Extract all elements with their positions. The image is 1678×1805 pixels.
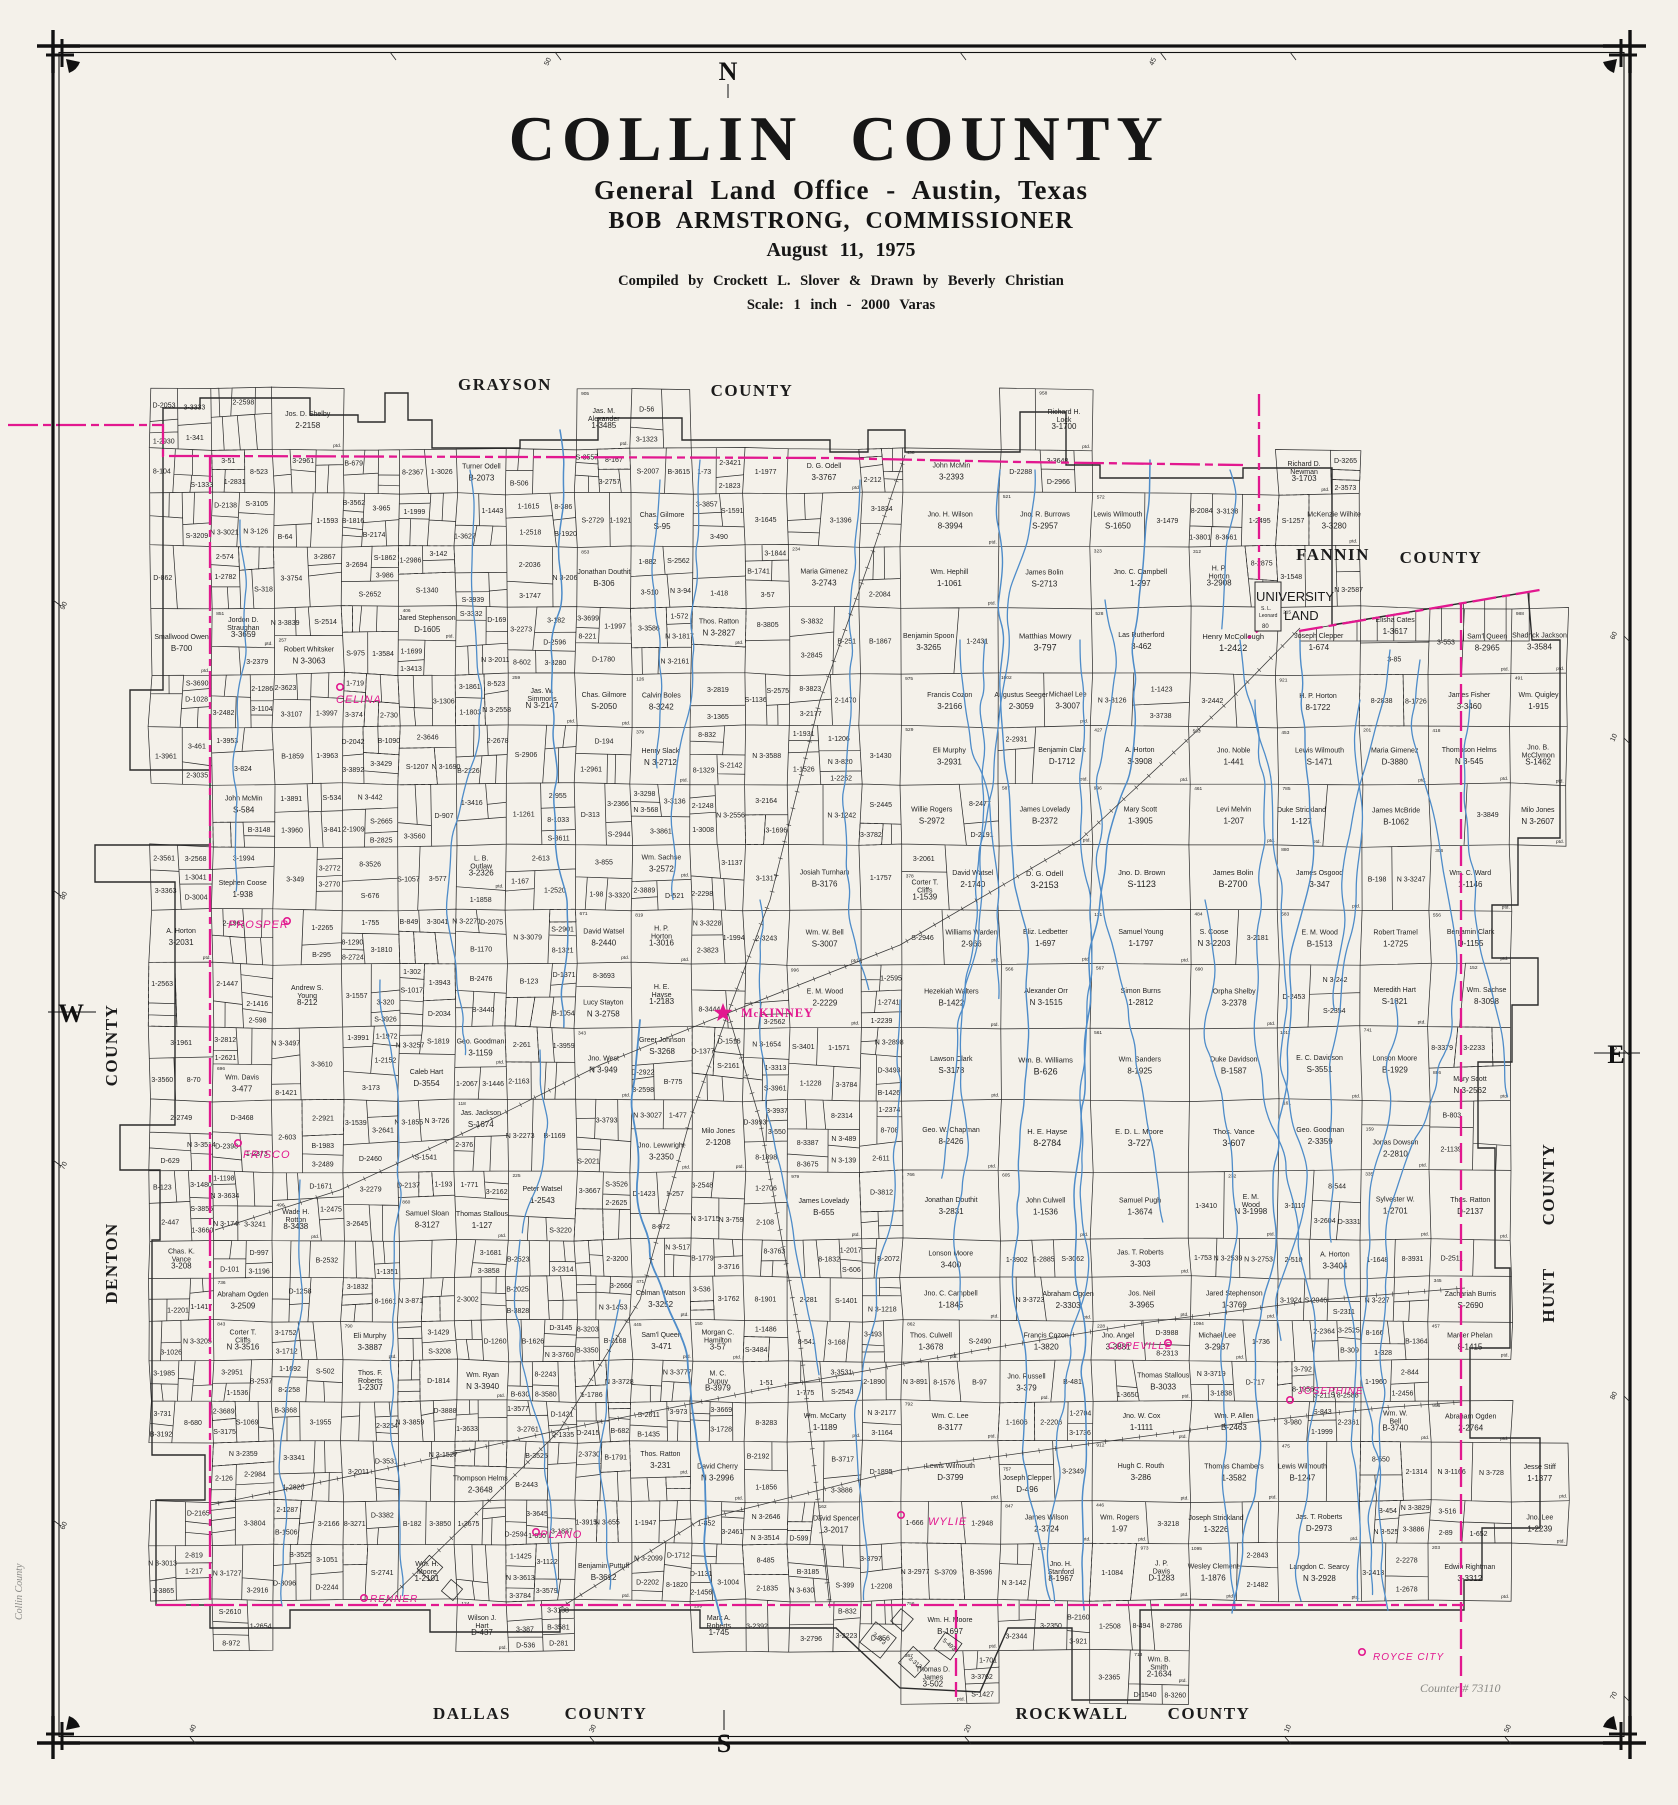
svg-text:N 3-142: N 3-142 — [1002, 1580, 1027, 1587]
svg-text:Jno. Lee: Jno. Lee — [1526, 1515, 1553, 1522]
svg-text:2-1314: 2-1314 — [1406, 1469, 1428, 1476]
svg-text:Lonson Moore: Lonson Moore — [1373, 1056, 1418, 1063]
svg-text:2-2810: 2-2810 — [1383, 1149, 1408, 1158]
svg-text:S-2050: S-2050 — [591, 702, 617, 711]
svg-text:1-2252: 1-2252 — [830, 776, 852, 783]
svg-text:B-803: B-803 — [1442, 1112, 1461, 1119]
svg-text:2-1890: 2-1890 — [863, 1379, 885, 1386]
svg-text:D-1260: D-1260 — [484, 1338, 507, 1345]
svg-text:225: 225 — [512, 1173, 520, 1179]
svg-text:2-955: 2-955 — [549, 793, 567, 800]
svg-text:ptd.: ptd. — [1083, 837, 1091, 843]
svg-text:N 3-2011: N 3-2011 — [481, 657, 509, 664]
svg-text:3-727: 3-727 — [1128, 1138, 1151, 1148]
svg-text:N 3-3063: N 3-3063 — [293, 657, 326, 666]
svg-text:1-207: 1-207 — [1223, 817, 1244, 826]
svg-text:1-1797: 1-1797 — [1128, 939, 1153, 948]
svg-text:2-2036: 2-2036 — [519, 562, 541, 569]
svg-text:2-1835: 2-1835 — [756, 1585, 778, 1592]
svg-text:Abraham Ogden: Abraham Ogden — [217, 1291, 268, 1298]
svg-text:D-3145: D-3145 — [549, 1325, 572, 1332]
svg-text:Wm. Davis: Wm. Davis — [225, 1075, 259, 1082]
svg-text:N 3-2273: N 3-2273 — [506, 1133, 535, 1140]
svg-text:1-3902: 1-3902 — [1006, 1257, 1028, 1264]
svg-text:2-212: 2-212 — [864, 477, 882, 484]
svg-text:880: 880 — [1281, 847, 1289, 853]
svg-text:1-1228: 1-1228 — [800, 1080, 822, 1087]
svg-text:B-626: B-626 — [1034, 1067, 1058, 1077]
svg-text:E. M. Wood: E. M. Wood — [807, 988, 844, 995]
svg-text:343: 343 — [578, 1030, 586, 1036]
svg-text:1-753: 1-753 — [1194, 1255, 1212, 1262]
svg-text:S-1462: S-1462 — [1525, 758, 1551, 767]
svg-text:S-975: S-975 — [346, 651, 365, 658]
svg-text:8-2084: 8-2084 — [1191, 508, 1213, 515]
svg-text:Wm. C. Lee: Wm. C. Lee — [932, 1413, 969, 1420]
svg-text:S-399: S-399 — [835, 1582, 854, 1589]
svg-text:Jos. Neil: Jos. Neil — [1128, 1290, 1155, 1297]
svg-text:HUNT: HUNT — [1539, 1267, 1558, 1322]
svg-text:556: 556 — [1433, 912, 1441, 918]
svg-text:S-1057: S-1057 — [397, 877, 420, 884]
svg-text:8-1832: 8-1832 — [818, 1257, 840, 1264]
svg-text:D-2075: D-2075 — [480, 920, 503, 927]
svg-text:8-166: 8-166 — [1366, 1330, 1384, 1337]
svg-text:S-2575: S-2575 — [767, 688, 790, 695]
svg-text:Sam'l Queen: Sam'l Queen — [1467, 633, 1507, 640]
svg-text:2-2749: 2-2749 — [170, 1115, 192, 1122]
svg-text:2-2229: 2-2229 — [812, 998, 837, 1007]
svg-text:B-454: B-454 — [1378, 1508, 1397, 1515]
svg-text:D-1712: D-1712 — [667, 1553, 690, 1560]
svg-text:ptd.: ptd. — [567, 719, 575, 725]
svg-text:3-3107: 3-3107 — [281, 712, 303, 719]
svg-text:1-3577: 1-3577 — [507, 1406, 529, 1413]
svg-text:2-2625: 2-2625 — [606, 1200, 628, 1207]
svg-text:D-3331: D-3331 — [1338, 1219, 1361, 1226]
svg-text:PLANO: PLANO — [540, 1529, 582, 1541]
svg-text:Thomas Stallous: Thomas Stallous — [1137, 1373, 1190, 1380]
svg-text:3-3793: 3-3793 — [596, 1118, 618, 1125]
svg-text:1-302: 1-302 — [403, 969, 421, 976]
svg-text:Lewis Wilmouth: Lewis Wilmouth — [1295, 748, 1344, 755]
svg-text:S-2445: S-2445 — [870, 802, 893, 809]
svg-text:3-2908: 3-2908 — [1207, 578, 1232, 587]
svg-text:8-1290: 8-1290 — [342, 939, 364, 946]
svg-text:E: E — [1607, 1040, 1624, 1069]
svg-text:1-1999: 1-1999 — [404, 509, 426, 516]
svg-text:973: 973 — [1140, 1546, 1148, 1552]
svg-text:1-2508: 1-2508 — [1099, 1623, 1121, 1630]
svg-text:N 3-2177: N 3-2177 — [867, 1410, 896, 1417]
svg-text:D-3554: D-3554 — [413, 1079, 440, 1088]
svg-text:1-2374: 1-2374 — [879, 1107, 901, 1114]
svg-text:S-3209: S-3209 — [186, 533, 209, 540]
svg-text:3-1696: 3-1696 — [766, 828, 788, 835]
svg-text:Thos. F.: Thos. F. — [358, 1370, 383, 1377]
svg-text:1-771: 1-771 — [461, 1182, 479, 1189]
svg-text:B-3176: B-3176 — [812, 879, 838, 888]
svg-text:N 3-820: N 3-820 — [828, 759, 853, 766]
svg-text:2-2984: 2-2984 — [244, 1471, 266, 1478]
svg-text:N 3-3829: N 3-3829 — [1401, 1505, 1430, 1512]
svg-text:D-3993: D-3993 — [743, 1119, 766, 1126]
svg-text:ptd.: ptd. — [991, 957, 999, 963]
svg-text:D-2973: D-2973 — [1306, 1524, 1333, 1533]
svg-text:2-3623: 2-3623 — [275, 685, 297, 692]
svg-text:3-1703: 3-1703 — [1292, 474, 1317, 483]
svg-text:475: 475 — [1282, 1443, 1290, 1449]
svg-text:3-1728: 3-1728 — [710, 1427, 732, 1434]
svg-text:8-3379: 8-3379 — [1431, 1045, 1453, 1052]
svg-text:S-2142: S-2142 — [720, 762, 743, 769]
svg-text:N 3-2753: N 3-2753 — [1244, 1256, 1273, 1263]
svg-text:Maria Gimenez: Maria Gimenez — [1371, 747, 1419, 754]
svg-text:S-534: S-534 — [323, 795, 342, 802]
svg-text:3-1838: 3-1838 — [1210, 1391, 1232, 1398]
svg-text:H. P.: H. P. — [1212, 565, 1227, 572]
svg-text:3-1306: 3-1306 — [433, 698, 455, 705]
svg-text:Robert Whitsker: Robert Whitsker — [284, 647, 335, 654]
svg-text:3-3241: 3-3241 — [244, 1221, 266, 1228]
svg-text:3-824: 3-824 — [234, 766, 252, 773]
svg-text:Lonson Moore: Lonson Moore — [928, 1250, 973, 1257]
svg-text:S-3611: S-3611 — [548, 835, 570, 842]
svg-text:S-1136: S-1136 — [745, 697, 767, 704]
svg-text:3-3298: 3-3298 — [634, 791, 656, 798]
svg-text:D-2460: D-2460 — [359, 1156, 382, 1163]
svg-text:3-3797: 3-3797 — [860, 1556, 882, 1563]
svg-text:A. Horton: A. Horton — [166, 928, 196, 935]
svg-text:Chas. Gilmore: Chas. Gilmore — [640, 512, 685, 519]
svg-text:B-3740: B-3740 — [1382, 1424, 1408, 1433]
svg-text:N 3-1453: N 3-1453 — [599, 1305, 628, 1312]
svg-text:3-2568: 3-2568 — [185, 856, 207, 863]
svg-text:1-1486: 1-1486 — [755, 1327, 777, 1334]
svg-text:2-3243: 2-3243 — [755, 935, 777, 942]
svg-text:N 3-1654: N 3-1654 — [752, 1041, 781, 1048]
svg-text:1-915: 1-915 — [1528, 702, 1549, 711]
svg-text:ptd.: ptd. — [1556, 839, 1564, 845]
svg-text:912: 912 — [1096, 1443, 1104, 1449]
svg-text:3-2223: 3-2223 — [836, 1633, 858, 1640]
svg-text:8-485: 8-485 — [757, 1558, 775, 1565]
svg-text:2-966: 2-966 — [961, 939, 982, 948]
svg-text:D-2288: D-2288 — [1009, 469, 1032, 476]
svg-text:118: 118 — [458, 1101, 466, 1107]
svg-text:3-2392: 3-2392 — [746, 1624, 768, 1631]
svg-text:8-1329: 8-1329 — [693, 768, 715, 775]
svg-text:James Bolin: James Bolin — [1025, 569, 1063, 576]
svg-text:3-3218: 3-3218 — [1157, 1521, 1179, 1528]
svg-text:3-208: 3-208 — [171, 1262, 192, 1271]
svg-text:N 3-2539: N 3-2539 — [1214, 1256, 1243, 1263]
svg-text:B-2160: B-2160 — [1067, 1614, 1090, 1621]
svg-text:2-2364: 2-2364 — [1313, 1329, 1335, 1336]
svg-text:2-3823: 2-3823 — [697, 947, 719, 954]
svg-text:S-1591: S-1591 — [721, 508, 744, 515]
svg-text:Duke Strickland: Duke Strickland — [1277, 807, 1326, 814]
svg-text:Corter T.: Corter T. — [911, 880, 938, 887]
svg-text:1-1198: 1-1198 — [213, 1176, 234, 1183]
svg-text:S-2729: S-2729 — [582, 518, 605, 525]
svg-text:D-997: D-997 — [250, 1250, 269, 1257]
svg-text:3-349: 3-349 — [286, 876, 304, 883]
svg-text:B-3562: B-3562 — [343, 500, 366, 507]
svg-text:Thompson Helms: Thompson Helms — [1442, 747, 1497, 754]
svg-text:N 3-3247: N 3-3247 — [1397, 876, 1426, 883]
svg-text:8-972: 8-972 — [222, 1641, 240, 1648]
svg-text:D-2138: D-2138 — [214, 502, 237, 509]
svg-text:N 3-206: N 3-206 — [552, 575, 577, 582]
svg-text:S-3105: S-3105 — [245, 501, 268, 508]
svg-text:B-832: B-832 — [838, 1608, 857, 1615]
svg-text:Jas. Jackson: Jas. Jackson — [461, 1110, 502, 1117]
svg-text:8-3438: 8-3438 — [283, 1222, 308, 1231]
svg-text:S-1123: S-1123 — [1128, 879, 1156, 889]
svg-text:3-1834: 3-1834 — [871, 506, 893, 513]
svg-text:ptd.: ptd. — [495, 884, 503, 890]
svg-text:1-97: 1-97 — [1112, 1524, 1129, 1533]
svg-text:B-3828: B-3828 — [507, 1308, 530, 1315]
svg-text:D-1605: D-1605 — [414, 625, 441, 634]
svg-text:1-1947: 1-1947 — [635, 1520, 657, 1527]
svg-text:1-51: 1-51 — [759, 1380, 773, 1387]
svg-text:S-2543: S-2543 — [831, 1389, 854, 1396]
svg-text:N 3-2587: N 3-2587 — [1334, 587, 1363, 594]
svg-text:S-1207: S-1207 — [406, 764, 429, 771]
svg-text:ptd.: ptd. — [311, 1234, 319, 1240]
svg-text:3-3804: 3-3804 — [244, 1521, 266, 1528]
svg-text:1-2704: 1-2704 — [1070, 1411, 1092, 1418]
svg-text:ptd.: ptd. — [1180, 777, 1188, 783]
svg-text:453: 453 — [1281, 730, 1289, 736]
svg-text:605: 605 — [1002, 1172, 1010, 1178]
svg-text:418: 418 — [1432, 728, 1440, 734]
svg-text:323: 323 — [1094, 548, 1102, 554]
svg-text:3-3579: 3-3579 — [536, 1588, 558, 1595]
svg-text:ptd.: ptd. — [1180, 1592, 1188, 1598]
svg-text:ptd.: ptd. — [1556, 779, 1564, 785]
svg-text:8-2786: 8-2786 — [1160, 1623, 1182, 1630]
svg-text:3-2562: 3-2562 — [764, 1019, 786, 1026]
svg-text:3-3716: 3-3716 — [718, 1264, 740, 1271]
svg-text:3-1479: 3-1479 — [1157, 518, 1179, 525]
svg-text:B-1859: B-1859 — [281, 754, 304, 761]
svg-text:3-3850: 3-3850 — [429, 1521, 451, 1528]
svg-text:162: 162 — [819, 1504, 827, 1510]
svg-text:Wm. Quigley: Wm. Quigley — [1518, 692, 1559, 699]
svg-text:3-1700: 3-1700 — [1052, 422, 1077, 431]
svg-text:8-2965: 8-2965 — [1475, 643, 1500, 652]
svg-text:N 3-2827: N 3-2827 — [702, 629, 735, 638]
svg-text:8-3693: 8-3693 — [593, 973, 615, 980]
svg-text:2-574: 2-574 — [216, 554, 234, 561]
svg-text:N 3-2928: N 3-2928 — [1303, 1574, 1336, 1583]
svg-text:ptd.: ptd. — [622, 1093, 630, 1099]
svg-text:8-2875: 8-2875 — [1251, 561, 1273, 568]
svg-text:Milo Jones: Milo Jones — [701, 1128, 735, 1135]
svg-text:Eli Murphy: Eli Murphy — [933, 748, 967, 755]
svg-text:3-3320: 3-3320 — [608, 892, 630, 899]
svg-text:ptd.: ptd. — [1500, 956, 1508, 962]
svg-text:S-3832: S-3832 — [801, 619, 824, 626]
svg-text:8-1421: 8-1421 — [275, 1090, 297, 1097]
svg-text:Eliz. Ledbetter: Eliz. Ledbetter — [1023, 929, 1068, 936]
svg-text:1-719: 1-719 — [346, 680, 364, 687]
svg-text:1-3960: 1-3960 — [281, 828, 303, 835]
svg-text:3-3784: 3-3784 — [836, 1082, 858, 1089]
svg-text:S-502: S-502 — [316, 1369, 335, 1376]
svg-text:2-3035: 2-3035 — [186, 772, 208, 779]
svg-text:Wade H.: Wade H. — [282, 1209, 309, 1216]
svg-text:203: 203 — [1432, 1545, 1440, 1551]
svg-text:B-295: B-295 — [312, 952, 331, 959]
svg-text:Matthias Mowry: Matthias Mowry — [1019, 631, 1072, 640]
svg-text:D-3468: D-3468 — [231, 1115, 254, 1122]
svg-text:3-1396: 3-1396 — [830, 518, 852, 525]
svg-text:Duke Davidson: Duke Davidson — [1210, 1056, 1258, 1063]
svg-text:Samuel Young: Samuel Young — [1118, 929, 1163, 936]
svg-text:Levi Melvin: Levi Melvin — [1216, 807, 1251, 814]
svg-text:N 3-871: N 3-871 — [398, 1298, 423, 1305]
svg-text:D-3988: D-3988 — [1155, 1330, 1178, 1337]
svg-text:N 3-2556: N 3-2556 — [716, 813, 745, 820]
svg-text:1-2422: 1-2422 — [1219, 643, 1247, 653]
svg-text:B-3350: B-3350 — [576, 1347, 599, 1354]
svg-text:GRAYSON: GRAYSON — [458, 375, 552, 394]
svg-text:2-1823: 2-1823 — [719, 483, 741, 490]
svg-text:Geo. W. Chapman: Geo. W. Chapman — [922, 1127, 980, 1134]
svg-text:ptd.: ptd. — [446, 634, 454, 640]
svg-text:2-3689: 2-3689 — [213, 1408, 235, 1415]
svg-text:2-2678: 2-2678 — [487, 738, 509, 745]
svg-text:N 3-1727: N 3-1727 — [213, 1570, 242, 1577]
svg-text:N 3-517: N 3-517 — [665, 1245, 690, 1252]
svg-text:3-1026: 3-1026 — [160, 1350, 182, 1357]
svg-text:1-652: 1-652 — [1470, 1531, 1488, 1538]
svg-text:3-3586: 3-3586 — [638, 626, 660, 633]
svg-text:N 3-139: N 3-139 — [831, 1158, 856, 1165]
svg-text:3-3560: 3-3560 — [404, 833, 426, 840]
svg-text:ptd.: ptd. — [733, 1355, 741, 1361]
svg-text:1-127: 1-127 — [472, 1221, 493, 1230]
svg-text:N 3-2712: N 3-2712 — [644, 758, 677, 767]
svg-text:1-3413: 1-3413 — [400, 666, 422, 673]
svg-text:B-2443: B-2443 — [515, 1482, 538, 1489]
svg-text:Orpha Shelby: Orpha Shelby — [1213, 989, 1256, 996]
svg-text:3-3858: 3-3858 — [478, 1268, 500, 1275]
svg-text:3-1810: 3-1810 — [371, 947, 393, 954]
svg-text:561: 561 — [1094, 1030, 1102, 1036]
svg-text:B-679: B-679 — [344, 460, 363, 467]
svg-text:3-1548: 3-1548 — [1280, 574, 1302, 581]
svg-text:Edwin Rightman: Edwin Rightman — [1444, 1564, 1495, 1571]
svg-text:2-1208: 2-1208 — [706, 1138, 731, 1147]
svg-text:3-2166: 3-2166 — [318, 1521, 340, 1528]
svg-text:496: 496 — [276, 1203, 284, 1209]
svg-text:3-1861: 3-1861 — [459, 684, 481, 691]
svg-text:D-2511: D-2511 — [1441, 1256, 1464, 1263]
svg-text:COUNTY: COUNTY — [850, 103, 1169, 174]
svg-text:B-1090: B-1090 — [378, 738, 401, 745]
svg-text:John McMin: John McMin — [933, 462, 971, 469]
svg-text:1-2741: 1-2741 — [878, 999, 900, 1006]
svg-text:Willie Rogers: Willie Rogers — [911, 807, 953, 814]
svg-text:ptd.: ptd. — [1352, 1594, 1360, 1600]
svg-text:N 3-3760: N 3-3760 — [545, 1352, 574, 1359]
svg-text:B-97: B-97 — [972, 1380, 987, 1387]
svg-text:1-3584: 1-3584 — [372, 651, 394, 658]
svg-text:2-1909: 2-1909 — [343, 826, 365, 833]
svg-text:8-1925: 8-1925 — [1127, 1067, 1152, 1076]
svg-text:1-1189: 1-1189 — [813, 1423, 838, 1432]
svg-text:3-493: 3-493 — [864, 1331, 882, 1338]
svg-text:B-2025: B-2025 — [506, 1286, 529, 1293]
svg-text:S-3709: S-3709 — [934, 1569, 957, 1576]
svg-text:D-1712: D-1712 — [1049, 757, 1076, 766]
svg-text:D-3880: D-3880 — [1382, 757, 1409, 766]
svg-text:B-2825: B-2825 — [370, 838, 393, 845]
svg-text:N 3-568: N 3-568 — [633, 807, 658, 814]
svg-text:1-1061: 1-1061 — [937, 579, 962, 588]
svg-text:819: 819 — [635, 913, 643, 919]
svg-text:Wm. Rogers: Wm. Rogers — [1100, 1514, 1139, 1521]
svg-text:B-3192: B-3192 — [150, 1432, 173, 1439]
svg-text:S-3007: S-3007 — [812, 940, 838, 949]
svg-text:8-3127: 8-3127 — [415, 1220, 440, 1229]
svg-text:3-142: 3-142 — [429, 551, 447, 558]
svg-text:1-2621: 1-2621 — [215, 1055, 237, 1062]
svg-text:491: 491 — [1515, 676, 1523, 682]
svg-text:3-2350: 3-2350 — [1040, 1623, 1062, 1630]
svg-text:D-1421: D-1421 — [551, 1411, 574, 1418]
svg-text:8-2784: 8-2784 — [1033, 1138, 1061, 1148]
svg-text:Counter # 73110: Counter # 73110 — [1420, 1681, 1500, 1695]
svg-text:Milo Jones: Milo Jones — [1521, 807, 1555, 814]
svg-text:N 3-525: N 3-525 — [1374, 1529, 1399, 1536]
svg-text:3-1480: 3-1480 — [190, 1182, 212, 1189]
svg-text:1-1858: 1-1858 — [470, 897, 492, 904]
svg-text:N 3-3257: N 3-3257 — [396, 1042, 425, 1049]
svg-text:D-3004: D-3004 — [185, 894, 208, 901]
svg-text:228: 228 — [1097, 1323, 1105, 1329]
svg-text:461: 461 — [1194, 786, 1202, 792]
svg-text:3-3669: 3-3669 — [710, 1407, 732, 1414]
svg-text:ptd.: ptd. — [1080, 777, 1088, 783]
svg-text:N 3-1515: N 3-1515 — [1030, 998, 1063, 1007]
svg-text:S-1069: S-1069 — [236, 1420, 259, 1427]
svg-text:Caleb Hart: Caleb Hart — [410, 1069, 444, 1076]
svg-text:3-986: 3-986 — [376, 572, 394, 579]
svg-text:Lewis Wilmouth: Lewis Wilmouth — [1278, 1463, 1327, 1470]
svg-text:2-1634: 2-1634 — [1147, 1669, 1172, 1678]
svg-text:988: 988 — [1516, 611, 1524, 617]
svg-text:B-1247: B-1247 — [1290, 1473, 1316, 1482]
svg-text:H. E. Hayse: H. E. Hayse — [1027, 1127, 1067, 1136]
svg-text:8-3283: 8-3283 — [755, 1420, 777, 1427]
svg-text:Las Rutherford: Las Rutherford — [1118, 632, 1164, 639]
svg-text:Jos. D. Shelby: Jos. D. Shelby — [285, 411, 331, 418]
svg-text:2-1248: 2-1248 — [692, 803, 714, 810]
svg-text:2-126: 2-126 — [215, 1476, 233, 1483]
svg-text:Wm. Ryan: Wm. Ryan — [466, 1372, 499, 1379]
svg-text:Wm. Sachse: Wm. Sachse — [1467, 987, 1507, 994]
svg-text:B-3148: B-3148 — [248, 827, 271, 834]
svg-text:COUNTY: COUNTY — [102, 1004, 121, 1087]
svg-text:567: 567 — [1096, 965, 1104, 971]
svg-text:3-2164: 3-2164 — [755, 798, 777, 805]
